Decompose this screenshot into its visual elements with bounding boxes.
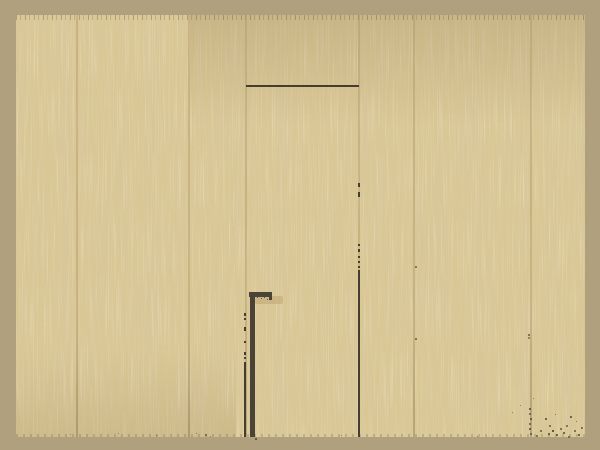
dirt-speck	[415, 266, 417, 268]
door-edge-mark	[244, 352, 246, 355]
dirt-speck	[528, 334, 530, 336]
plank-seam	[413, 15, 415, 437]
dirt-speck	[210, 436, 211, 437]
door-edge-mark	[244, 318, 246, 320]
dirt-speck	[536, 435, 538, 437]
dirt-speck	[529, 428, 531, 430]
dirt-speck	[528, 337, 530, 339]
dirt-speck	[581, 427, 583, 429]
cane[interactable]	[249, 292, 283, 438]
dirt-speck	[533, 398, 534, 399]
dirt-speck	[341, 435, 342, 436]
dirt-speck	[267, 299, 268, 300]
dirt-speck	[578, 434, 580, 436]
dirt-speck	[255, 438, 257, 440]
dirt-speck	[529, 413, 531, 415]
dirt-speck	[566, 425, 568, 427]
dirt-speck	[556, 434, 558, 436]
scene	[0, 0, 600, 450]
dirt-speck	[570, 416, 572, 418]
door-edge-mark	[358, 261, 360, 263]
plank-seam	[188, 15, 190, 437]
dirt-speck	[555, 414, 556, 415]
dirt-speck	[257, 297, 258, 298]
dirt-speck	[415, 338, 417, 340]
dirt-speck	[576, 421, 577, 422]
door-edge-mark	[358, 270, 360, 437]
dirt-speck	[205, 434, 207, 436]
plank-seam	[530, 15, 532, 437]
dirt-speck	[548, 433, 550, 435]
dirt-speck	[574, 430, 576, 432]
door-edge-mark	[358, 266, 360, 268]
dirt-speck	[118, 433, 119, 434]
dirt-speck	[477, 436, 478, 437]
dirt-speck	[563, 432, 565, 434]
door-edge-mark	[244, 362, 246, 437]
dirt-speck	[529, 408, 531, 410]
dirt-speck	[549, 425, 551, 427]
dirt-speck	[70, 434, 71, 435]
door-edge-mark	[244, 341, 246, 343]
door-edge-mark	[358, 256, 360, 258]
door-edge-mark	[358, 192, 360, 197]
dirt-speck	[530, 418, 532, 420]
door-edge-mark	[358, 249, 360, 252]
dirt-speck	[156, 435, 157, 436]
dirt-speck	[530, 433, 532, 435]
dirt-speck	[264, 297, 265, 298]
dirt-speck	[568, 436, 570, 438]
cane-shaft	[250, 296, 255, 437]
door-edge-mark	[244, 357, 246, 359]
dirt-speck	[271, 298, 272, 299]
dirt-speck	[529, 423, 531, 425]
dirt-speck	[261, 298, 262, 299]
dirt-speck	[560, 428, 562, 430]
door-edge-mark	[358, 183, 360, 187]
dirt-speck	[512, 412, 513, 413]
door-edge-mark	[358, 244, 360, 246]
dirt-speck	[196, 433, 197, 434]
dirt-speck	[520, 405, 521, 406]
door-edge-mark	[244, 313, 246, 316]
dirt-speck	[552, 430, 554, 432]
door-edge-mark	[244, 327, 246, 331]
plank-seam	[76, 15, 78, 437]
dirt-speck	[540, 430, 542, 432]
dirt-speck	[545, 418, 547, 420]
door-top-edge	[246, 85, 359, 87]
